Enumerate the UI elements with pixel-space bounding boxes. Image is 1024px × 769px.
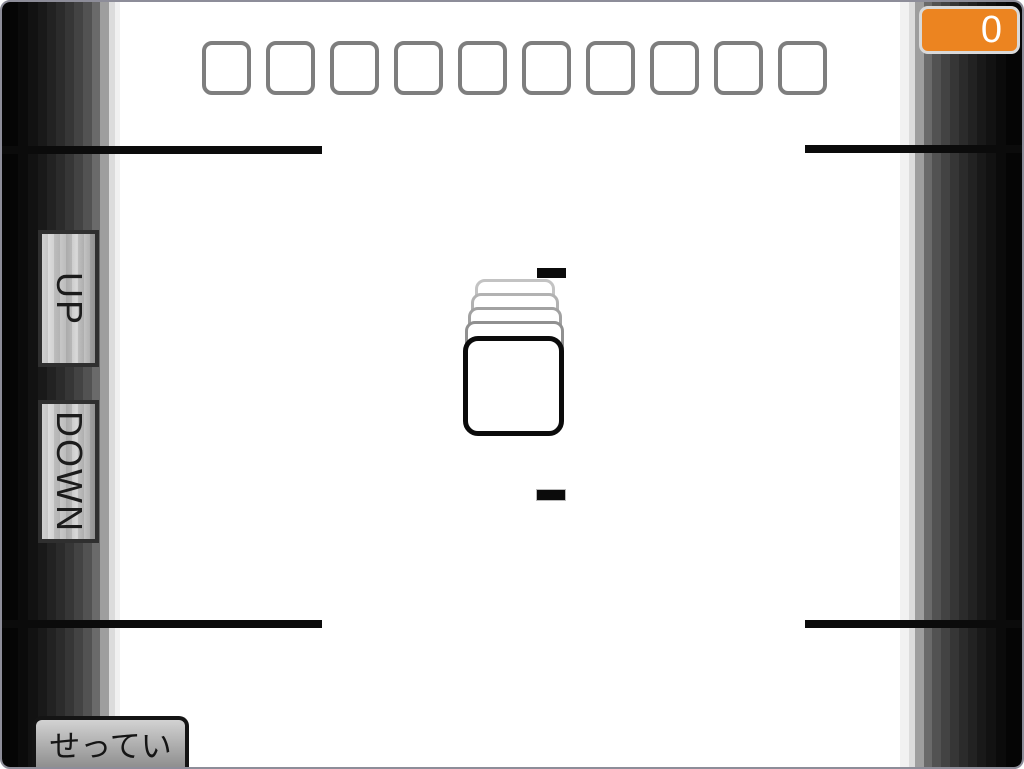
wall-bottom-right [805,620,1022,628]
left-page-edge-stripes [2,2,120,767]
down-button[interactable]: DOWN [38,400,99,543]
lower-dash-marker [537,490,565,500]
game-window: 0 UP DOWN せってい [0,0,1024,769]
card-slot[interactable] [330,41,379,95]
card-slot[interactable] [394,41,443,95]
card-slot[interactable] [458,41,507,95]
settings-button[interactable]: せってい [32,716,189,767]
down-button-label: DOWN [48,411,90,533]
card-slot[interactable] [522,41,571,95]
card-stack-top-card[interactable] [463,336,564,436]
card-slot[interactable] [586,41,635,95]
card-slot[interactable] [778,41,827,95]
upper-dash-marker [537,268,566,278]
wall-top-right [805,145,1022,153]
card-slot[interactable] [650,41,699,95]
card-slot[interactable] [714,41,763,95]
right-page-edge-stripes [900,2,1022,767]
card-slot-row [202,41,827,95]
wall-bottom-left [2,620,322,628]
score-badge: 0 [919,6,1020,54]
up-button-label: UP [48,271,90,325]
up-button[interactable]: UP [38,230,99,367]
card-slot[interactable] [266,41,315,95]
wall-top-left [2,146,322,154]
card-slot[interactable] [202,41,251,95]
